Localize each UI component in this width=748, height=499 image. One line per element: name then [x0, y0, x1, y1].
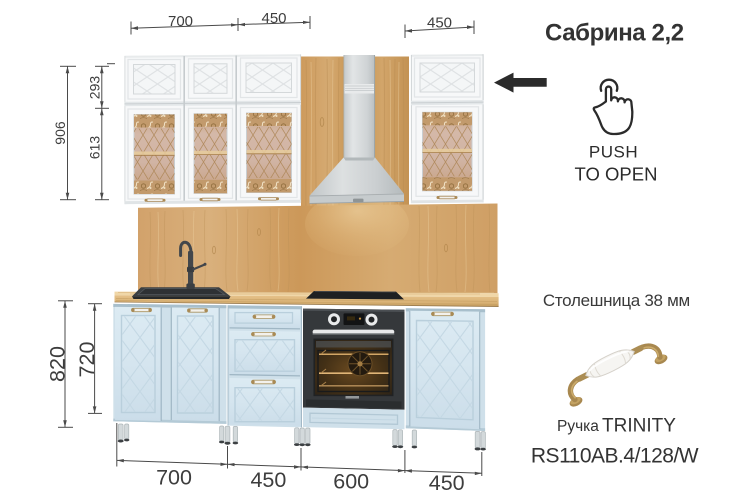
svg-text:450: 450	[429, 471, 465, 495]
svg-text:720: 720	[75, 342, 99, 378]
svg-text:RS110AB.4/128/W: RS110AB.4/128/W	[531, 445, 699, 468]
svg-text:450: 450	[261, 10, 286, 27]
svg-text:700: 700	[156, 466, 192, 490]
svg-text:PUSH: PUSH	[589, 142, 638, 161]
svg-text:293: 293	[87, 76, 103, 100]
svg-text:TO OPEN: TO OPEN	[575, 163, 658, 184]
svg-text:450: 450	[427, 15, 452, 32]
svg-text:Сабрина 2,2: Сабрина 2,2	[545, 20, 684, 47]
svg-text:450: 450	[250, 468, 286, 492]
svg-text:613: 613	[87, 136, 103, 160]
svg-text:906: 906	[52, 121, 68, 145]
svg-text:600: 600	[333, 469, 369, 493]
svg-text:700: 700	[168, 13, 193, 30]
svg-text:820: 820	[46, 346, 70, 382]
svg-text:Ручка: Ручка	[557, 418, 599, 435]
svg-text:TRINITY: TRINITY	[602, 416, 676, 437]
svg-text:Столешница 38 мм: Столешница 38 мм	[543, 291, 690, 310]
